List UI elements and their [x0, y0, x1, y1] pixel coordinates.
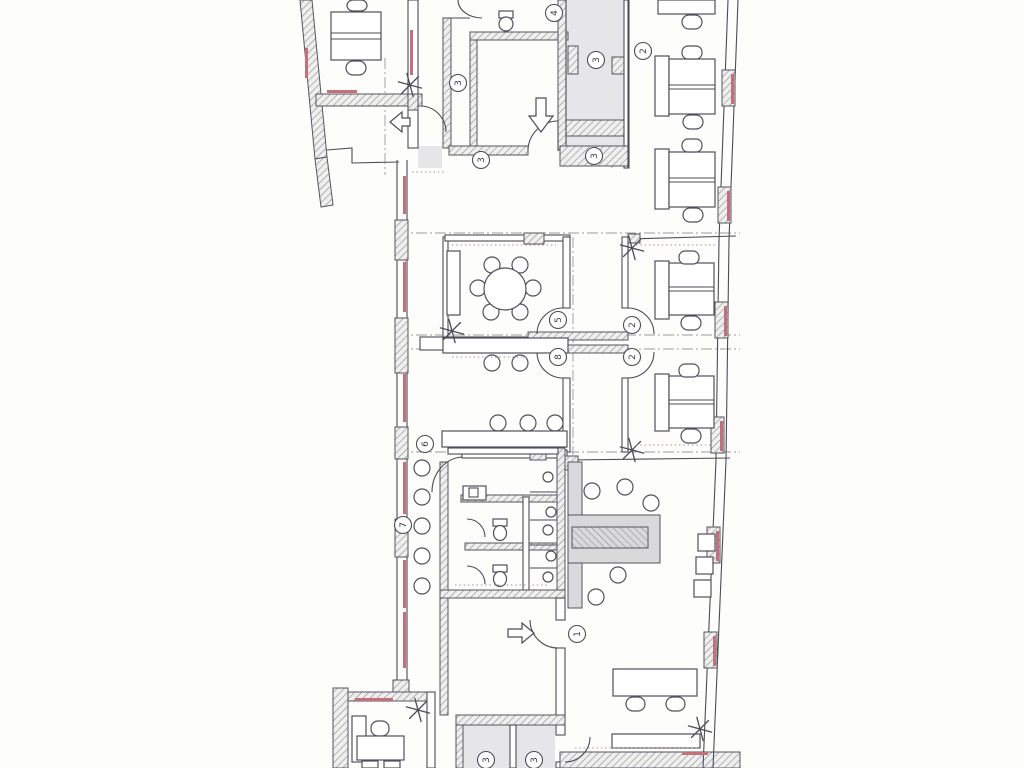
chair [414, 548, 430, 564]
window-marker [410, 30, 413, 75]
south-room-furniture [612, 669, 700, 748]
wall [440, 598, 448, 715]
wall-room-bottom [449, 146, 528, 155]
wall [333, 688, 348, 768]
marker-number: 3 [454, 80, 464, 86]
entrance-arrow-icon [390, 112, 410, 132]
desk-unit [658, 0, 715, 29]
wall [440, 590, 565, 598]
marker-number: 3 [592, 57, 602, 63]
desk-unit [655, 46, 715, 129]
chair [362, 761, 378, 768]
room-number-marker: 3 [588, 52, 605, 69]
chair [681, 316, 701, 330]
room-number-marker: 7 [395, 517, 412, 534]
door-arc [458, 0, 482, 18]
chair [682, 139, 702, 152]
sink [543, 525, 553, 535]
sink [543, 572, 553, 582]
toilet [494, 572, 507, 587]
desk-unit [655, 139, 715, 222]
chair [347, 0, 367, 11]
chair [525, 280, 541, 296]
window-marker [403, 612, 406, 668]
desk [669, 59, 715, 114]
wall [465, 543, 557, 550]
chair [626, 697, 645, 711]
lobby-floor [418, 146, 442, 168]
marker-number: 3 [530, 757, 540, 763]
desk [669, 152, 715, 207]
room-number-marker: 2 [635, 43, 652, 60]
room-number-marker: 3 [473, 152, 490, 169]
reception-counter [568, 462, 660, 608]
door-arc-wc1 [467, 519, 485, 537]
wall [622, 378, 628, 452]
room-number-marker: 2 [624, 317, 641, 334]
desk-cabinet [655, 374, 669, 431]
wall-pier [568, 46, 578, 74]
door-arc-entry [530, 620, 558, 648]
marker-number: 5 [554, 317, 564, 323]
chair [683, 115, 703, 129]
light-fixture-icon [406, 698, 429, 721]
room-number-marker: 8 [550, 349, 567, 366]
marker-number: 2 [628, 322, 638, 328]
window-marker [727, 191, 730, 221]
wall [556, 598, 565, 620]
desk-cabinet [655, 149, 669, 209]
wall-facade-west-upper [315, 157, 333, 207]
storage-box [694, 580, 711, 597]
room-number-marker: 5 [550, 312, 567, 329]
wall-line [628, 236, 736, 239]
chair [681, 429, 701, 443]
desk [669, 376, 714, 428]
desk [357, 736, 404, 760]
chair [547, 415, 563, 431]
marker-number: 1 [573, 631, 583, 637]
chair [371, 721, 389, 736]
entrance-arrow-icon [529, 98, 553, 132]
wall [563, 237, 570, 308]
wall-pier [395, 318, 408, 373]
door-arc-wc2 [467, 566, 485, 584]
window-marker [327, 90, 357, 93]
chair [490, 415, 506, 431]
round-table [484, 268, 526, 310]
stool [588, 589, 604, 605]
desk-unit [352, 716, 404, 768]
desk-cabinet [655, 56, 669, 116]
chair [666, 697, 685, 711]
wall-wc-right [557, 448, 565, 598]
wall [456, 725, 463, 768]
chair [682, 46, 702, 59]
counter-table [443, 338, 568, 353]
room-number-marker: 3 [526, 752, 543, 768]
stool [584, 483, 600, 499]
storage-box [698, 534, 715, 551]
desk-cabinet [655, 261, 669, 319]
wall-corridor-cross [566, 120, 628, 136]
wall [523, 497, 529, 590]
room-number-marker: 6 [417, 436, 434, 453]
wall-pier [524, 233, 544, 244]
wall-wc-left [440, 462, 448, 598]
marker-number: 7 [399, 522, 409, 528]
window-marker [403, 560, 406, 608]
wall-corridor-left [558, 0, 566, 150]
room-number-marker: 3 [450, 75, 467, 92]
room-number-marker: 3 [478, 752, 495, 768]
sideboard [447, 251, 460, 315]
furniture [331, 0, 715, 768]
window-marker [731, 74, 734, 104]
desk-unit [655, 251, 714, 330]
wall-room-top [470, 32, 568, 40]
stool [610, 567, 626, 583]
room-number-marker: 1 [569, 626, 586, 643]
chair [683, 208, 703, 222]
wall [456, 715, 565, 725]
room-number-marker: 3 [586, 148, 603, 165]
chair [520, 415, 536, 431]
counter-top-hatch [572, 527, 648, 548]
storage-box [696, 557, 713, 574]
wall [427, 692, 435, 768]
table [442, 431, 567, 447]
wall-room-left [470, 40, 477, 148]
multi-room-furniture [442, 338, 568, 447]
marker-number: 4 [550, 10, 560, 16]
wall-pier [395, 220, 408, 260]
room-number-marker: 4 [546, 5, 563, 22]
window-marker [720, 421, 723, 451]
desk-unit [655, 364, 714, 443]
table [613, 669, 697, 696]
wall [448, 448, 558, 454]
room-number-marker: 2 [624, 349, 641, 366]
chair [384, 761, 400, 768]
sideboard [612, 734, 700, 748]
window-marker [403, 262, 406, 312]
marker-number: 2 [628, 354, 638, 360]
chair [414, 518, 430, 534]
window-marker [724, 306, 727, 336]
waiting-chairs [414, 460, 430, 594]
wall-line [567, 458, 730, 460]
window-marker [713, 636, 716, 666]
desk-unit [331, 0, 381, 75]
floor-plan-drawing: 3 3 3 3 2 4 5 8 [0, 0, 1024, 768]
wall-facade-northwest [300, 0, 327, 159]
stool [617, 479, 633, 495]
desk [658, 0, 715, 14]
sink [546, 551, 556, 561]
stool [643, 495, 659, 511]
desk [669, 263, 714, 315]
chair [679, 364, 699, 377]
window-marker [403, 462, 406, 514]
wall-pier [395, 427, 408, 459]
window-marker [403, 374, 406, 422]
window-marker [403, 176, 406, 214]
window-marker [305, 48, 308, 78]
chair [414, 489, 430, 505]
sink [543, 472, 553, 482]
chair [346, 61, 366, 75]
scanned-floor-plan-page: 3 3 3 3 2 4 5 8 [0, 0, 1024, 768]
chair [414, 460, 430, 476]
window-marker [355, 698, 393, 701]
marker-number: 3 [590, 153, 600, 159]
window-marker [682, 752, 708, 755]
marker-number: 8 [554, 354, 564, 360]
window-marker [716, 531, 719, 561]
chair [682, 15, 702, 29]
wall [510, 725, 516, 768]
marker-number: 3 [477, 157, 487, 163]
marker-number: 3 [482, 757, 492, 763]
marker-number: 2 [639, 48, 649, 54]
marker-number: 6 [421, 441, 431, 447]
chair [414, 578, 430, 594]
wall-meeting-top [445, 235, 570, 241]
door-arc-vestibule [420, 106, 446, 132]
chair [679, 251, 699, 264]
sink [546, 507, 556, 517]
meeting-room-furniture [447, 251, 541, 320]
vestibule-step-line [327, 148, 399, 163]
desk [331, 12, 381, 60]
toilet [499, 17, 513, 31]
wall [622, 237, 628, 308]
toilet [494, 526, 507, 541]
wall [316, 94, 422, 106]
